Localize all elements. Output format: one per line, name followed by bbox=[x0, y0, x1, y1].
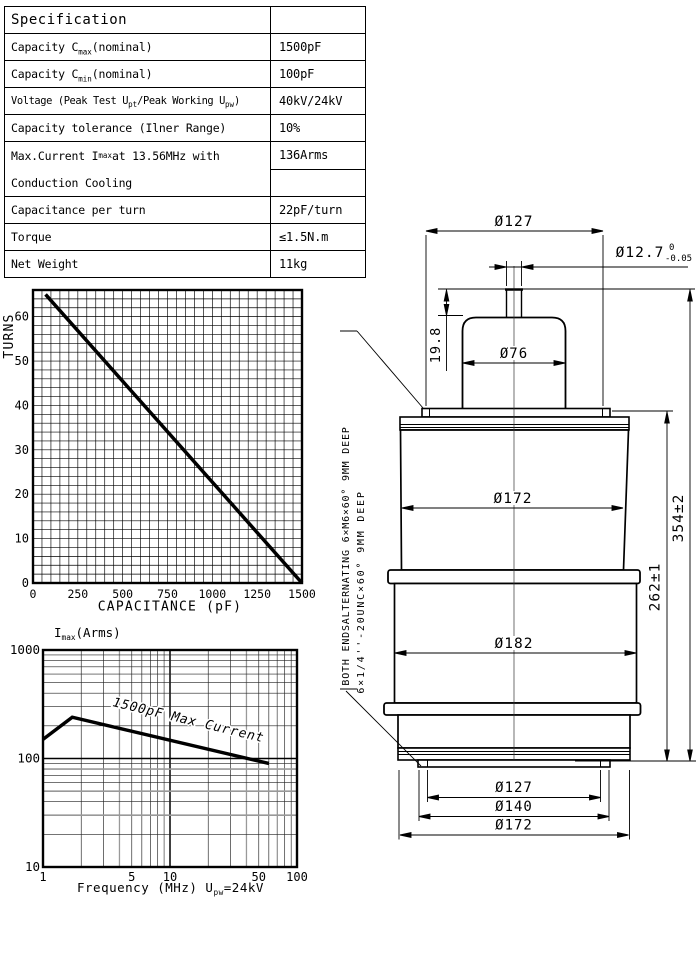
y-axis-label: TURNS bbox=[2, 313, 17, 358]
svg-text:40: 40 bbox=[15, 398, 29, 412]
spec-row-value: 1500pF bbox=[271, 34, 366, 61]
spec-row-value: 40kV/24kV bbox=[271, 88, 366, 115]
svg-text:1000: 1000 bbox=[10, 642, 40, 657]
table-row: Voltage (Peak Test Upt/Peak Working Upw)… bbox=[5, 88, 366, 115]
max-current-chart: 151050100101001000Imax(Arms)Frequency (M… bbox=[0, 612, 335, 907]
svg-text:1: 1 bbox=[39, 870, 46, 884]
svg-text:1500: 1500 bbox=[288, 587, 316, 601]
svg-text:0: 0 bbox=[22, 576, 29, 590]
svg-text:10: 10 bbox=[15, 532, 29, 546]
spec-row-label: Voltage (Peak Test Upt/Peak Working Upw) bbox=[5, 88, 271, 115]
dim-d172-bot: Ø172 bbox=[495, 818, 533, 834]
spec-row-label: Capacity Cmin(nominal) bbox=[5, 61, 271, 88]
dim-d12-7-tol-lo: -0.05 bbox=[665, 254, 692, 264]
dim-d76: Ø76 bbox=[500, 346, 528, 362]
x-axis-label: Frequency (MHz) Upw=24kV bbox=[77, 880, 264, 897]
y-tick-labels: 101001000 bbox=[10, 642, 40, 874]
datasheet-page: { "table": { "title": "Specification", "… bbox=[0, 0, 697, 969]
spec-row-value: 100pF bbox=[271, 61, 366, 88]
series-label: 1500pF Max Current bbox=[111, 695, 265, 746]
table-row: Net Weight 11kg bbox=[5, 251, 366, 278]
table-row: Capacity Cmin(nominal) 100pF bbox=[5, 61, 366, 88]
table-row: Capacity tolerance (Ilner Range) 10% bbox=[5, 115, 366, 142]
grid bbox=[43, 650, 297, 867]
table-row: Capacity Cmax(nominal) 1500pF bbox=[5, 34, 366, 61]
capacitor-drawing: Ø127 Ø12.7 0 -0.05 19.8 Ø76 Ø172 Ø182 35… bbox=[335, 210, 697, 865]
spec-row-value: 10% bbox=[271, 115, 366, 142]
dim-d172-mid: Ø172 bbox=[494, 491, 533, 507]
svg-text:1250: 1250 bbox=[243, 587, 271, 601]
spec-row-value-empty bbox=[271, 169, 366, 197]
dim-d182: Ø182 bbox=[495, 636, 534, 652]
spec-row-label: Torque bbox=[5, 224, 271, 251]
table-title: Specification bbox=[5, 7, 271, 34]
svg-text:100: 100 bbox=[17, 751, 40, 766]
svg-text:250: 250 bbox=[67, 587, 88, 601]
spec-row-label: Capacitance per turn bbox=[5, 197, 271, 224]
spec-table: Specification Capacity Cmax(nominal) 150… bbox=[4, 6, 366, 278]
dim-19-8: 19.8 bbox=[428, 327, 444, 364]
svg-text:20: 20 bbox=[15, 487, 29, 501]
top-flange bbox=[422, 409, 610, 418]
spec-row-label: Max.Current Imax at 13.56MHz with Conduc… bbox=[5, 142, 271, 197]
thread-note-1: BOTH ENDSALTERNATING 6×M6×60° 9MM DEEP bbox=[341, 426, 352, 685]
dim-d12-7-tol-hi: 0 bbox=[669, 243, 674, 253]
dim-d140: Ø140 bbox=[495, 799, 533, 815]
svg-text:30: 30 bbox=[15, 443, 29, 457]
spec-row-label: Capacity Cmax(nominal) bbox=[5, 34, 271, 61]
y-axis-label: Imax(Arms) bbox=[54, 625, 121, 642]
dim-d127-top: Ø127 bbox=[495, 214, 534, 230]
lower-flange bbox=[384, 703, 641, 715]
table-row: Torque ≤1.5N.m bbox=[5, 224, 366, 251]
table-row: Capacitance per turn 22pF/turn bbox=[5, 197, 366, 224]
dim-262: 262±1 bbox=[648, 563, 664, 612]
thread-notes: BOTH ENDSALTERNATING 6×M6×60° 9MM DEEP 6… bbox=[341, 426, 367, 693]
dim-354: 354±2 bbox=[671, 494, 687, 543]
table-row: Specification bbox=[5, 7, 366, 34]
data-line bbox=[46, 294, 302, 583]
spec-row-label: Net Weight bbox=[5, 251, 271, 278]
svg-text:10: 10 bbox=[25, 859, 40, 874]
spec-row-value: 136Arms bbox=[271, 142, 366, 170]
dim-d127-bot: Ø127 bbox=[495, 780, 533, 796]
svg-text:100: 100 bbox=[286, 870, 308, 884]
table-title-value bbox=[271, 7, 366, 34]
spec-row-label: Capacity tolerance (Ilner Range) bbox=[5, 115, 271, 142]
dim-d12-7: Ø12.7 bbox=[616, 245, 665, 261]
table-row: Max.Current Imax at 13.56MHz with Conduc… bbox=[5, 142, 366, 170]
turns-vs-capacitance-chart: 02505007501000125015000102030405060CAPAC… bbox=[0, 280, 335, 620]
svg-text:0: 0 bbox=[30, 587, 37, 601]
thread-note-2: 6×1/4''-20UNC×60° 9MM DEEP bbox=[356, 490, 367, 693]
